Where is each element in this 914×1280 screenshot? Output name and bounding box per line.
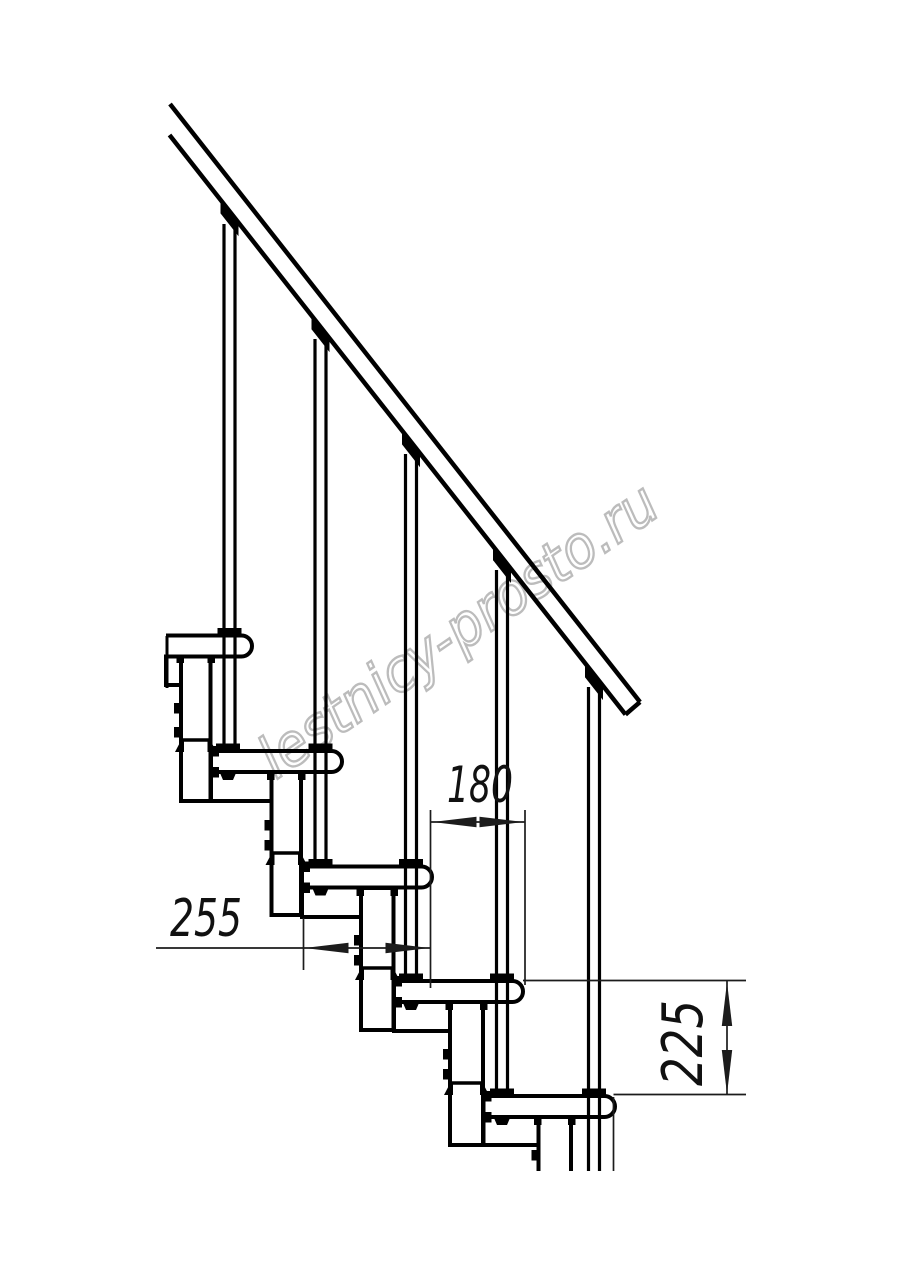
dimension-arrow [722,1050,732,1094]
tread-profile [484,1096,616,1117]
handrail-bottom-edge [170,135,626,715]
dimension-value: 225 [651,1000,716,1086]
column-body [450,1002,483,1145]
column-top-weld [391,889,399,897]
baluster-pass-ring [582,1089,606,1097]
module-bolt [174,727,183,738]
module-underplate [394,1002,450,1031]
module-bolt [265,840,274,851]
column-body [272,772,302,915]
tread-edge-bolt [395,997,403,1008]
tread-edge-bolt [303,883,311,894]
baluster [312,317,330,863]
baluster-foot-flange [399,974,423,982]
technical-drawing-canvas: 180255225lestnicy-prosto.ru [0,0,914,1280]
dimension-arrow [305,943,349,953]
tread-profile [302,867,432,888]
module-bolt [443,1069,452,1080]
tread-profile [394,981,523,1002]
dimension-180: 180 [431,756,526,988]
module-bolt [354,955,363,966]
column-body [361,888,394,1030]
support-column [443,1002,489,1145]
module-bolt [174,703,183,714]
baluster-foot-flange [309,859,333,867]
baluster [221,201,239,748]
module-bolt [354,935,363,946]
stair-side-view-drawing: 180255225lestnicy-prosto.ru [0,0,914,1280]
support-column [174,655,217,801]
stair-tread [166,636,252,657]
tread-edge-bolt [484,1112,492,1123]
baluster-pass-ring [490,974,514,982]
baluster-foot-flange [216,744,240,752]
support-column [532,1117,576,1171]
column-top-weld [357,889,365,897]
module-bolt [265,820,274,831]
baluster-pass-ring [399,859,423,867]
dimension-value: 180 [447,756,513,814]
dimension-arrow [386,943,430,953]
tread-profile [166,636,252,657]
column-body [181,655,211,801]
module-underplate [211,772,272,801]
module-bolt [443,1049,452,1060]
module-underplate [302,888,361,918]
tread-edge-bolt [212,767,220,778]
baluster-pass-ring [218,628,242,636]
module-bolt [532,1150,541,1161]
baluster-foot-flange [490,1089,514,1097]
dimension-arrow [480,817,524,827]
watermark-text: lestnicy-prosto.ru [245,469,670,792]
dimension-arrow [433,817,477,827]
support-column [265,772,308,915]
module-underplate [484,1117,539,1145]
support-column [354,888,400,1030]
dimension-value: 255 [170,889,242,949]
dimension-arrow [722,982,732,1026]
